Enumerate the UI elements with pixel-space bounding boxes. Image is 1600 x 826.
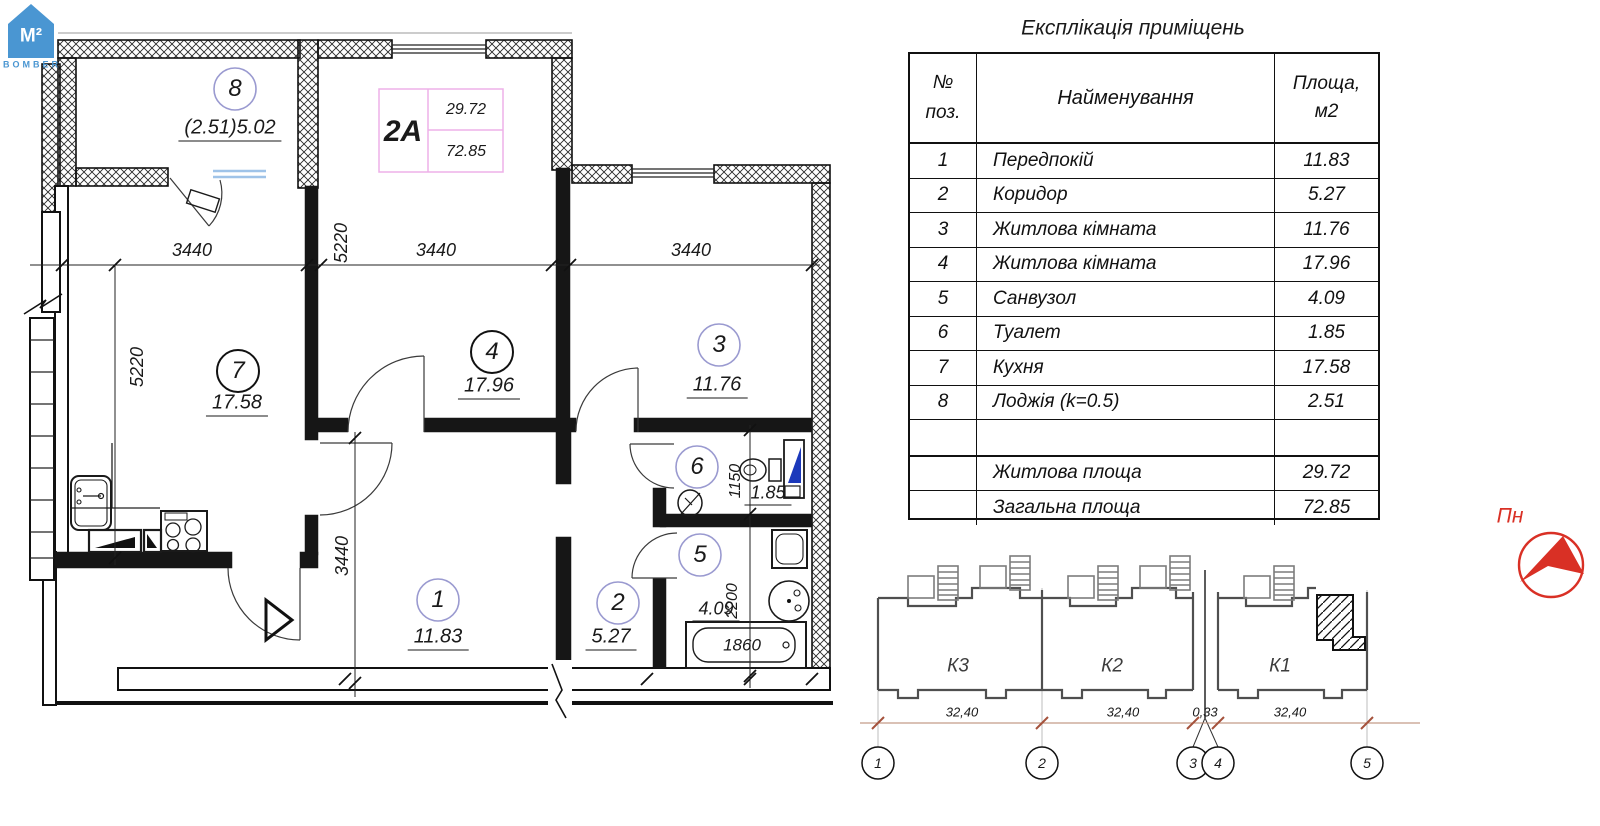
window-loggia <box>213 171 266 177</box>
room8-area: (2.51)5.02 <box>178 117 281 142</box>
table-cell-name: Загальна площа <box>977 491 1275 526</box>
table-cell-name: Санвузол <box>977 282 1275 316</box>
table-cell-area: 17.96 <box>1275 248 1378 282</box>
dim-room3-width: 3440 <box>671 241 711 259</box>
window-room3 <box>632 169 714 177</box>
table-cell-num: 8 <box>910 386 977 420</box>
col-header-area-line2: м2 <box>1315 101 1339 123</box>
table-cell-area: 72.85 <box>1275 491 1378 526</box>
stove <box>161 511 207 552</box>
site-dim-3: 0,33 <box>1192 706 1217 719</box>
room8-number: 8 <box>228 77 241 101</box>
logo-mark: M² <box>20 27 42 46</box>
table-cell-num: 4 <box>910 248 977 282</box>
table-row: 1Передпокій11.83 <box>910 144 1378 179</box>
table-cell-name: Кухня <box>977 351 1275 385</box>
table-cell-area: 11.83 <box>1275 144 1378 178</box>
table-cell-area: 5.27 <box>1275 179 1378 213</box>
site-dim-4: 32,40 <box>1274 706 1307 719</box>
table-cell-area: 1.85 <box>1275 317 1378 351</box>
table-cell-name: Передпокій <box>977 144 1275 178</box>
table-row: Житлова площа29.72 <box>910 456 1378 491</box>
site-key-plan <box>860 556 1420 779</box>
room1-number: 1 <box>431 588 444 612</box>
axis-number-5: 5 <box>1363 756 1371 770</box>
door-kitchen <box>320 443 392 515</box>
room7-area: 17.58 <box>206 392 268 417</box>
table-cell-name: Коридор <box>977 179 1275 213</box>
table-row <box>910 420 1378 456</box>
table-header: № поз. Найменування Площа, м2 <box>910 54 1378 144</box>
axis-number-1: 1 <box>874 756 882 770</box>
table-row: 6Туалет1.85 <box>910 317 1378 352</box>
table-row: 4Житлова кімната17.96 <box>910 248 1378 283</box>
wc-sink <box>678 490 702 516</box>
dim-room4-width: 3440 <box>416 241 456 259</box>
architectural-drawing: Експлікація приміщень № поз. Найменуванн… <box>0 0 1600 826</box>
table-cell-name: Лоджія (k=0.5) <box>977 386 1275 420</box>
table-row: 8Лоджія (k=0.5)2.51 <box>910 386 1378 421</box>
table-cell-num: 6 <box>910 317 977 351</box>
col-header-area: Площа, м2 <box>1275 54 1378 142</box>
dim-tub-length: 1860 <box>723 637 761 654</box>
axis-number-3: 3 <box>1189 756 1197 770</box>
door-loggia <box>170 178 222 226</box>
right-exterior-wall <box>812 183 830 675</box>
table-cell-num: 1 <box>910 144 977 178</box>
loggia-top-wall <box>58 40 300 58</box>
room2-number: 2 <box>611 591 624 615</box>
table-row: Загальна площа72.85 <box>910 491 1378 526</box>
north-arrow-icon <box>1519 533 1584 597</box>
explication-table: № поз. Найменування Площа, м2 1Передпокі… <box>908 52 1380 520</box>
table-cell-area: 17.58 <box>1275 351 1378 385</box>
building-section-k2 <box>1042 556 1193 698</box>
table-cell-name: Туалет <box>977 317 1275 351</box>
col-header-num-line2: поз. <box>926 102 961 124</box>
table-cell-num: 5 <box>910 282 977 316</box>
room2-area: 5.27 <box>586 626 637 651</box>
door-room4 <box>348 356 424 432</box>
dim-bath-depth: 2200 <box>725 583 741 619</box>
north-label: Пн <box>1497 506 1524 527</box>
dim-hall-depth: 3440 <box>333 536 351 576</box>
table-row: 7Кухня17.58 <box>910 351 1378 386</box>
col-header-num: № поз. <box>910 54 977 142</box>
table-cell-name <box>977 420 1275 455</box>
table-cell-name: Житлова кімната <box>977 213 1275 247</box>
table-cell-num <box>910 491 977 526</box>
toilet <box>740 459 781 481</box>
unit-code: 2А <box>384 117 422 147</box>
entrance-door <box>228 568 300 640</box>
table-cell-num <box>910 420 977 455</box>
section-label-k3: К3 <box>947 657 969 676</box>
table-cell-area <box>1275 420 1378 455</box>
table-row: 2Коридор5.27 <box>910 179 1378 214</box>
apartment-location-marker <box>1317 595 1365 650</box>
bath-sink <box>769 581 809 621</box>
table-row: 5Санвузол4.09 <box>910 282 1378 317</box>
table-cell-num: 2 <box>910 179 977 213</box>
room3-number: 3 <box>712 333 725 357</box>
counter-unit <box>89 530 161 552</box>
room6-area: 1.85 <box>744 483 791 506</box>
table-cell-name: Житлова кімната <box>977 248 1275 282</box>
door-wc <box>630 444 674 488</box>
table-row: 3Житлова кімната11.76 <box>910 213 1378 248</box>
room7-number: 7 <box>231 359 244 383</box>
dim-wc-depth: 1150 <box>728 464 744 498</box>
door-bathroom <box>632 533 677 578</box>
table-cell-num <box>910 457 977 490</box>
logo-word: BOMBER <box>3 61 61 70</box>
door-room3 <box>576 368 638 432</box>
site-dim-1: 32,40 <box>946 706 979 719</box>
table-cell-name: Житлова площа <box>977 457 1275 490</box>
axis-number-2: 2 <box>1038 756 1046 770</box>
table-cell-area: 2.51 <box>1275 386 1378 420</box>
table-cell-num: 7 <box>910 351 977 385</box>
building-section-k3 <box>878 556 1042 698</box>
unit-living-area: 29.72 <box>446 102 486 118</box>
washing-machine <box>772 530 807 568</box>
room3-area: 11.76 <box>687 374 748 399</box>
table-title: Експлікація приміщень <box>1021 18 1245 39</box>
table-cell-area: 4.09 <box>1275 282 1378 316</box>
col-header-num-line1: № <box>933 72 954 94</box>
window-room4 <box>392 45 486 53</box>
room4-area: 17.96 <box>458 375 520 400</box>
table-cell-area: 11.76 <box>1275 213 1378 247</box>
dim-depth-left: 5220 <box>128 347 146 387</box>
kitchen-sink <box>71 476 111 530</box>
table-cell-num: 3 <box>910 213 977 247</box>
section-label-k2: К2 <box>1101 657 1123 676</box>
unit-total-area: 72.85 <box>446 144 486 160</box>
ladder-symbol <box>30 318 54 580</box>
axis-number-4: 4 <box>1214 756 1222 770</box>
room6-number: 6 <box>690 455 703 479</box>
dim-depth-top: 5220 <box>332 223 350 263</box>
bottom-wall <box>118 668 830 690</box>
room5-number: 5 <box>693 543 706 567</box>
room1-area: 11.83 <box>408 626 469 651</box>
table-cell-area: 29.72 <box>1275 457 1378 490</box>
col-header-area-line1: Площа, <box>1293 73 1360 95</box>
dim-kitchen-width: 3440 <box>172 241 212 259</box>
col-header-name: Найменування <box>977 54 1275 142</box>
room4-number: 4 <box>485 340 498 364</box>
section-label-k1: К1 <box>1269 657 1291 676</box>
site-dim-2: 32,40 <box>1107 706 1140 719</box>
